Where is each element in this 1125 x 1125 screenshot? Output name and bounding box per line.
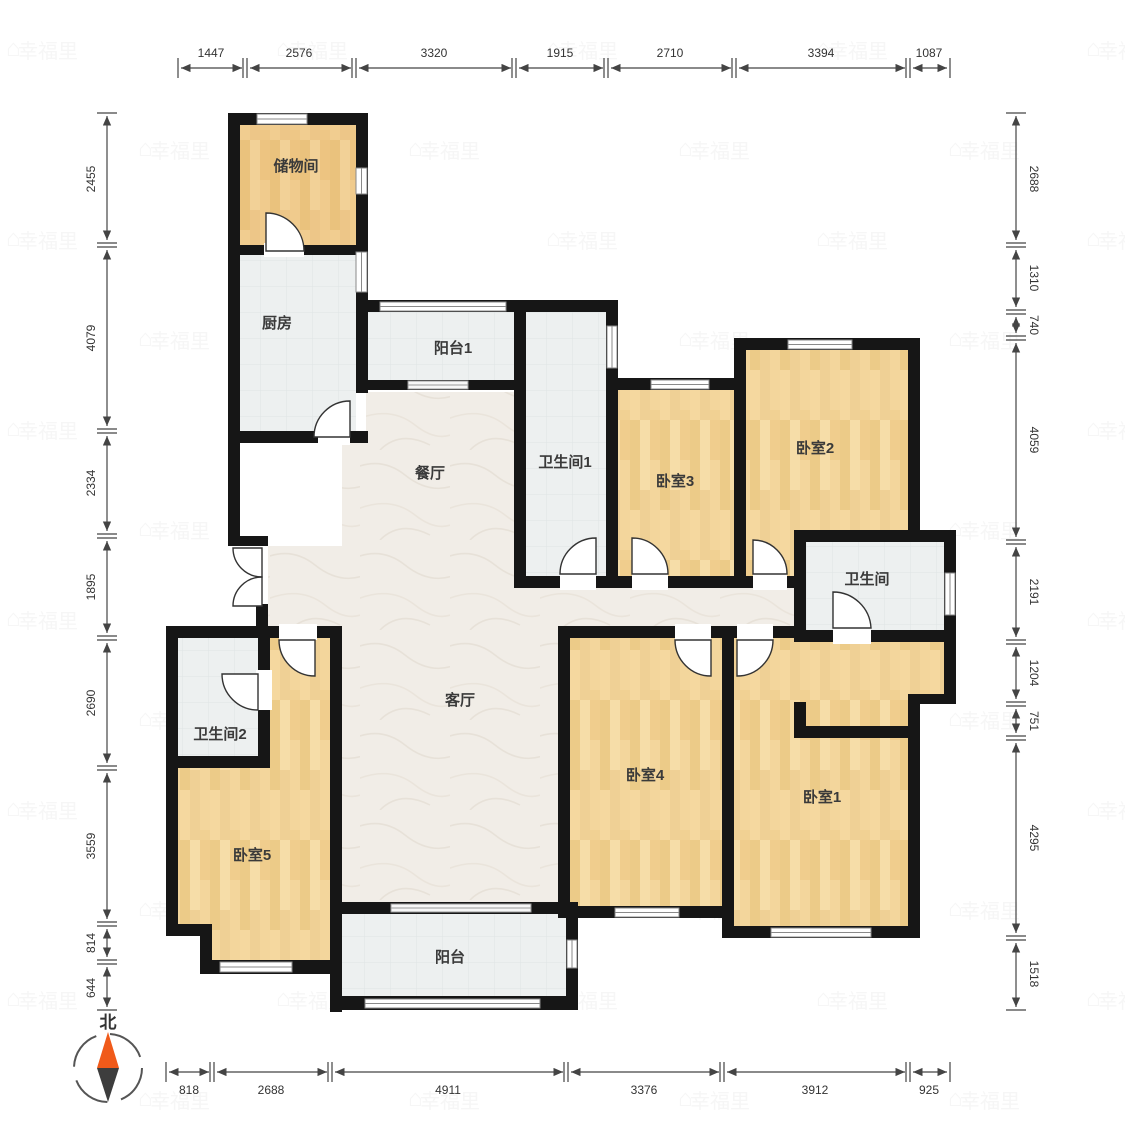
dim-label: 1895 bbox=[84, 573, 98, 600]
dim-label: 2690 bbox=[84, 689, 98, 716]
room-label-bed2: 卧室2 bbox=[796, 439, 834, 457]
dim-label: 3320 bbox=[421, 46, 448, 60]
dim-label: 2688 bbox=[258, 1083, 285, 1097]
dim-label: 2334 bbox=[84, 469, 98, 496]
dim-label: 4059 bbox=[1027, 427, 1041, 454]
room-label-bed5: 卧室5 bbox=[233, 846, 271, 864]
dim-label: 1447 bbox=[198, 46, 225, 60]
dim-label: 1915 bbox=[547, 46, 574, 60]
room-bath1-floor bbox=[526, 312, 606, 576]
dim-label: 740 bbox=[1027, 315, 1041, 335]
dim-label: 2688 bbox=[1027, 166, 1041, 193]
room-storage-tint bbox=[240, 125, 356, 245]
dim-label: 814 bbox=[84, 933, 98, 953]
dim-label: 2455 bbox=[84, 165, 98, 192]
dim-label: 644 bbox=[84, 978, 98, 998]
window bbox=[945, 573, 955, 615]
window bbox=[607, 326, 617, 368]
dim-label: 3912 bbox=[802, 1083, 829, 1097]
room-label-living: 客厅 bbox=[444, 691, 475, 709]
window bbox=[365, 999, 540, 1008]
room-label-bath-master: 卫生间 bbox=[844, 570, 889, 588]
window bbox=[356, 252, 367, 292]
window bbox=[788, 340, 852, 349]
dim-label: 2710 bbox=[657, 46, 684, 60]
window bbox=[356, 168, 367, 194]
room-label-bed3: 卧室3 bbox=[656, 472, 694, 490]
window bbox=[220, 962, 292, 972]
dim-label: 1310 bbox=[1027, 265, 1041, 292]
room-label-bed1: 卧室1 bbox=[803, 788, 841, 806]
room-label-bath1: 卫生间1 bbox=[538, 453, 591, 471]
dim-label: 2191 bbox=[1027, 579, 1041, 606]
room-label-storage: 储物间 bbox=[273, 157, 318, 175]
dim-label: 4079 bbox=[84, 324, 98, 351]
window bbox=[651, 380, 709, 389]
window bbox=[615, 908, 679, 917]
dim-label: 2576 bbox=[286, 46, 313, 60]
window bbox=[567, 940, 577, 968]
dim-label: 4295 bbox=[1027, 825, 1041, 852]
compass-north-label: 北 bbox=[100, 1013, 117, 1032]
window bbox=[771, 928, 871, 937]
dim-label: 1204 bbox=[1027, 660, 1041, 687]
room-label-bed4: 卧室4 bbox=[626, 766, 665, 784]
room-label-balcony1: 阳台1 bbox=[434, 339, 472, 357]
room-label-balcony: 阳台 bbox=[435, 948, 465, 966]
dim-label: 1518 bbox=[1027, 961, 1041, 988]
room-label-bath2: 卫生间2 bbox=[193, 725, 246, 743]
room-label-dining: 餐厅 bbox=[415, 464, 445, 482]
window bbox=[380, 302, 506, 311]
sliding-door bbox=[408, 381, 468, 389]
dim-label: 751 bbox=[1027, 711, 1041, 731]
dim-label: 3559 bbox=[84, 832, 98, 859]
dim-label: 1087 bbox=[916, 46, 943, 60]
dim-label: 3394 bbox=[808, 46, 835, 60]
sliding-door bbox=[391, 904, 531, 912]
floorplan-canvas: 幸福里 ⌂ 幸福里 ⌂ bbox=[0, 0, 1125, 1125]
dim-label: 4911 bbox=[435, 1083, 461, 1097]
floorplan-page: 幸福里 ⌂ 幸福里 ⌂ bbox=[0, 0, 1125, 1125]
dim-label: 925 bbox=[919, 1083, 939, 1097]
room-label-kitchen: 厨房 bbox=[262, 314, 292, 332]
dim-label: 3376 bbox=[631, 1083, 658, 1097]
window bbox=[257, 114, 307, 124]
dim-label: 818 bbox=[179, 1083, 199, 1097]
